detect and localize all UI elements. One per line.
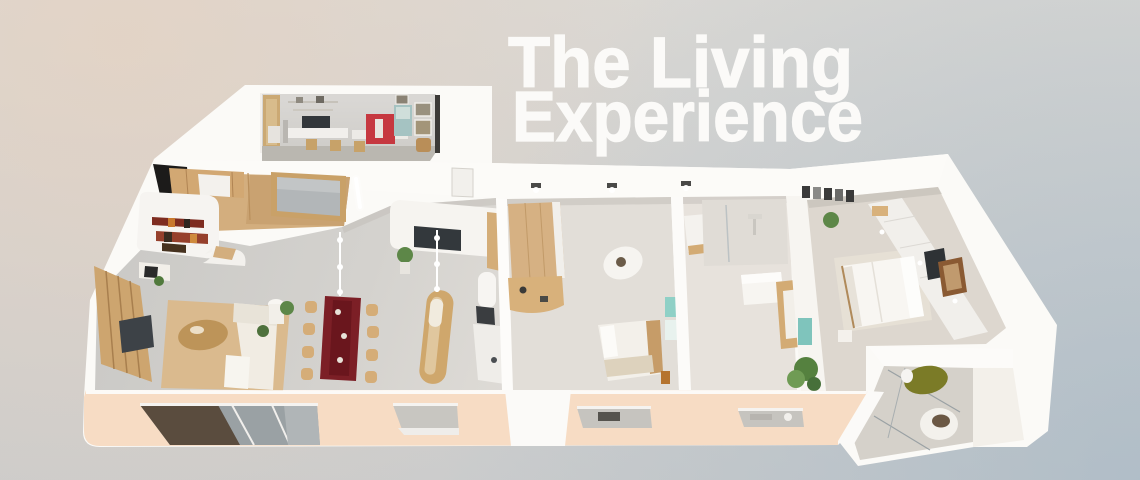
- svg-text:Experience: Experience: [512, 78, 863, 157]
